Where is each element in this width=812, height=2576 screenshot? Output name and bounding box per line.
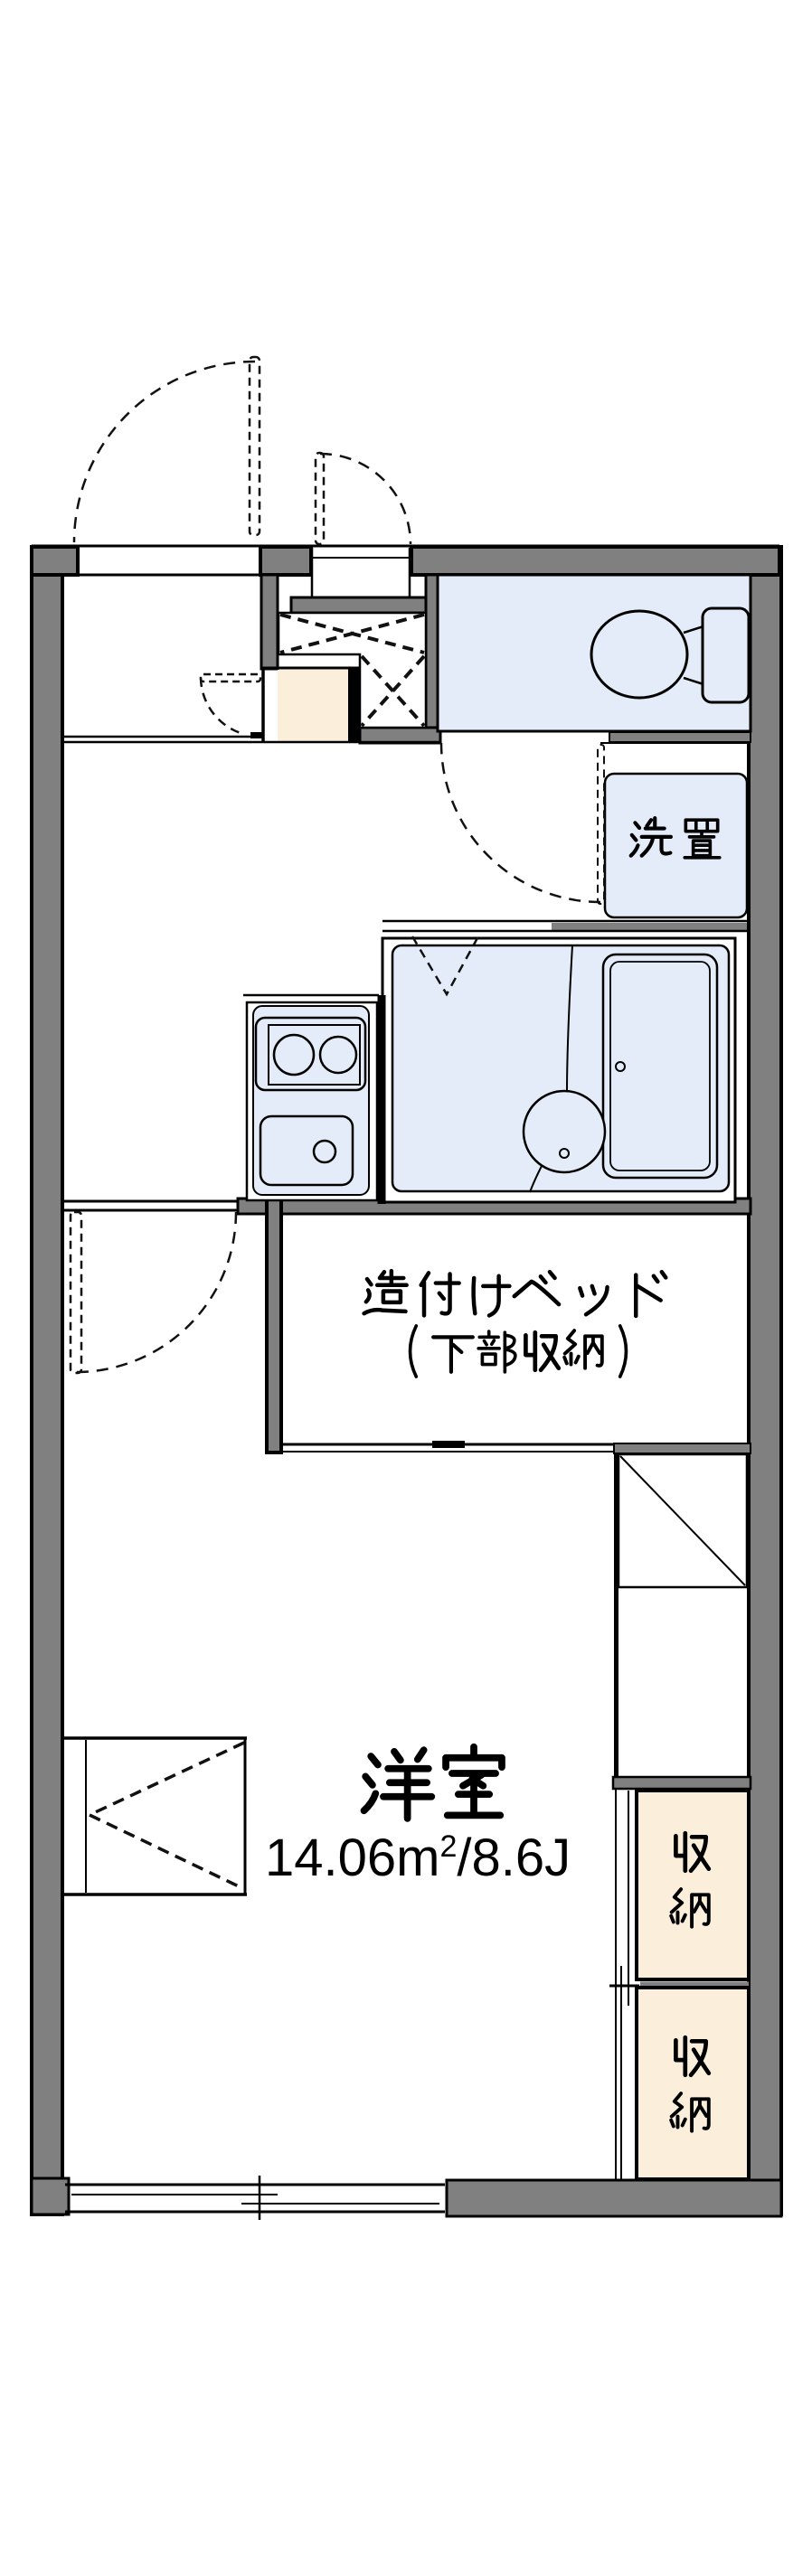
svg-text:14.06m2/8.6J: 14.06m2/8.6J <box>265 1829 571 1887</box>
